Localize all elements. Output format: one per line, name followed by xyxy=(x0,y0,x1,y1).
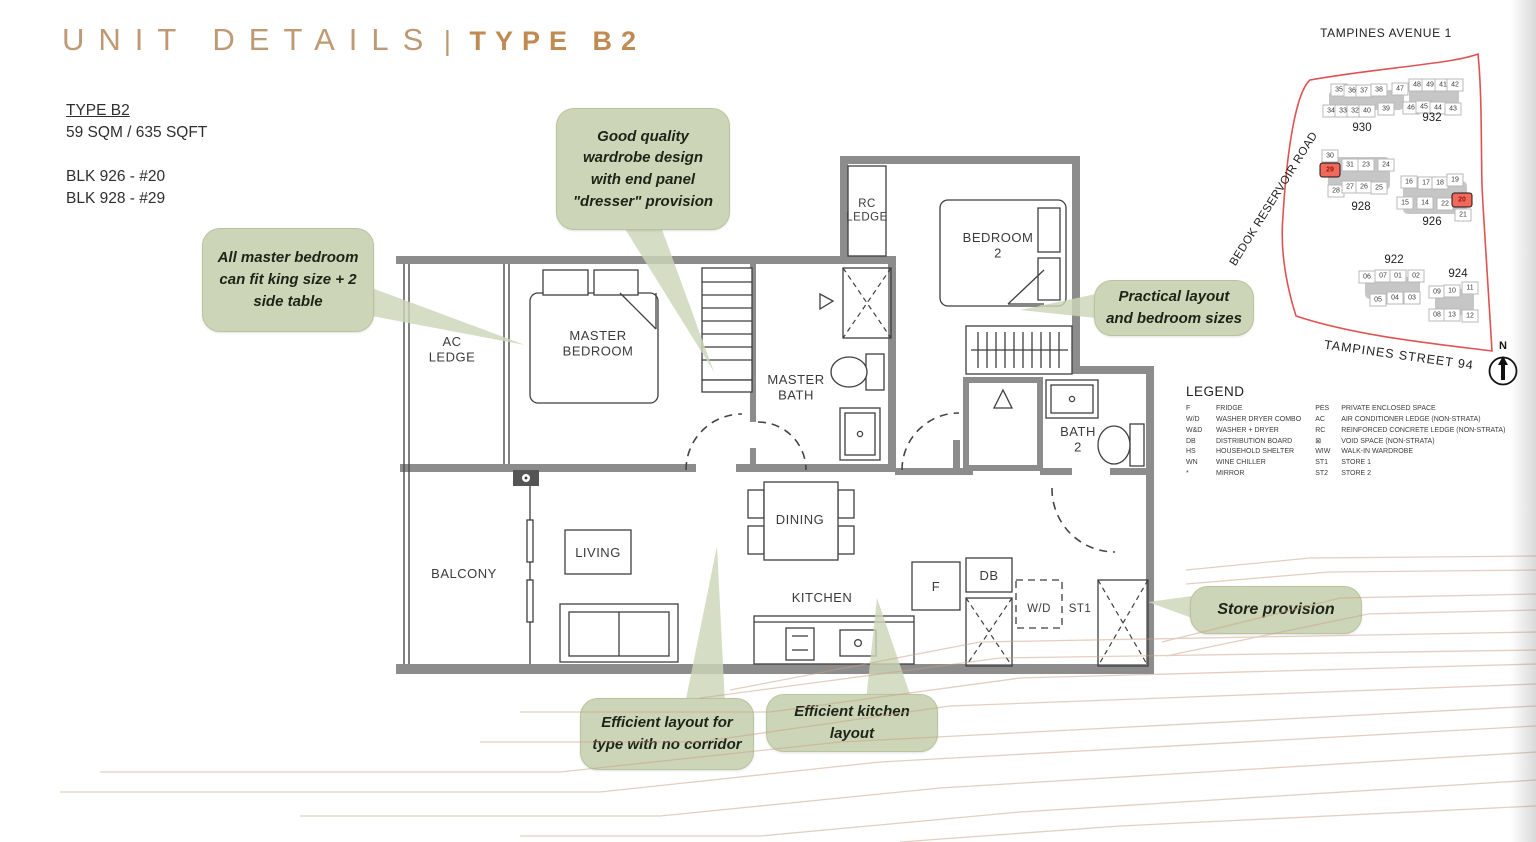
legend-desc: WINE CHILLER xyxy=(1216,458,1266,469)
title-unit-details: UNIT DETAILS xyxy=(62,22,437,57)
legend-row: FFRIDGE xyxy=(1186,404,1301,415)
legend-desc: HOUSEHOLD SHELTER xyxy=(1216,447,1294,458)
legend-row: DBDISTRIBUTION BOARD xyxy=(1186,437,1301,448)
legend-abbr: W/D xyxy=(1186,415,1216,426)
legend-desc: WASHER + DRYER xyxy=(1216,426,1279,437)
legend: LEGEND FFRIDGEW/DWASHER DRYER COMBOW&DWA… xyxy=(1186,384,1534,480)
map-unit: 31 xyxy=(1342,159,1359,172)
legend-desc: PRIVATE ENCLOSED SPACE xyxy=(1341,404,1436,415)
map-unit: 16 xyxy=(1401,176,1418,189)
unit-area: 59 SQM / 635 SQFT xyxy=(66,122,207,144)
callout-efficient-kitchen: Efficient kitchen layout xyxy=(766,694,938,752)
map-unit: 23 xyxy=(1358,159,1375,172)
block-label: 930 xyxy=(1352,122,1371,134)
map-unit: 06 xyxy=(1359,271,1376,284)
callout-practical-layout: Practical layout and bedroom sizes xyxy=(1094,280,1254,336)
map-unit: 15 xyxy=(1397,197,1414,210)
callout-store-provision: Store provision xyxy=(1190,586,1362,634)
callout-master-bedroom: All master bedroom can fit king size + 2… xyxy=(202,228,374,332)
unit-block-line: BLK 926 - #20 xyxy=(66,166,207,188)
legend-abbr: W&D xyxy=(1186,426,1216,437)
unit-type-label: TYPE B2 xyxy=(66,100,207,122)
legend-row: PESPRIVATE ENCLOSED SPACE xyxy=(1315,404,1505,415)
map-unit: 05 xyxy=(1370,294,1387,307)
legend-desc: VOID SPACE (NON-STRATA) xyxy=(1341,437,1434,448)
map-unit: 24 xyxy=(1378,159,1395,172)
map-unit-highlighted: 29 xyxy=(1320,163,1341,178)
street-tampines-avenue-1: TAMPINES AVENUE 1 xyxy=(1236,26,1536,40)
callout-wardrobe: Good quality wardrobe design with end pa… xyxy=(556,108,730,230)
map-unit: 21 xyxy=(1455,209,1472,222)
legend-abbr: ST1 xyxy=(1315,458,1341,469)
legend-abbr: WIW xyxy=(1315,447,1341,458)
site-boundary xyxy=(1236,18,1536,393)
legend-abbr: F xyxy=(1186,404,1216,415)
map-unit: 47 xyxy=(1392,83,1409,96)
map-unit: 30 xyxy=(1322,150,1339,163)
legend-row: ACAIR CONDITIONER LEDGE (NON-STRATA) xyxy=(1315,415,1505,426)
map-unit: 25 xyxy=(1371,182,1388,195)
title-type-b2: TYPE B2 xyxy=(469,26,645,56)
legend-desc: STORE 1 xyxy=(1341,458,1371,469)
legend-column: PESPRIVATE ENCLOSED SPACEACAIR CONDITION… xyxy=(1315,404,1505,480)
block-label: 922 xyxy=(1384,254,1403,266)
legend-desc: DISTRIBUTION BOARD xyxy=(1216,437,1292,448)
legend-desc: FRIDGE xyxy=(1216,404,1242,415)
legend-abbr: AC xyxy=(1315,415,1341,426)
legend-row: W&DWASHER + DRYER xyxy=(1186,426,1301,437)
legend-row: ST2STORE 2 xyxy=(1315,469,1505,480)
legend-desc: REINFORCED CONCRETE LEDGE (NON-STRATA) xyxy=(1341,426,1505,437)
page-title: UNIT DETAILS | TYPE B2 xyxy=(62,22,645,58)
map-unit: 11 xyxy=(1462,282,1479,295)
map-unit: 03 xyxy=(1404,292,1421,305)
legend-abbr: * xyxy=(1186,469,1216,480)
map-unit: 39 xyxy=(1378,103,1395,116)
legend-abbr: PES xyxy=(1315,404,1341,415)
legend-abbr: RC xyxy=(1315,426,1341,437)
map-unit: 13 xyxy=(1444,309,1461,322)
legend-abbr: HS xyxy=(1186,447,1216,458)
unit-details-page: UNIT DETAILS | TYPE B2 TYPE B2 59 SQM / … xyxy=(0,0,1536,842)
legend-row: *MIRROR xyxy=(1186,469,1301,480)
map-unit: 02 xyxy=(1408,270,1425,283)
legend-desc: STORE 2 xyxy=(1341,469,1371,480)
legend-row: WIWWALK-IN WARDROBE xyxy=(1315,447,1505,458)
map-unit: 19 xyxy=(1447,174,1464,187)
map-unit: 12 xyxy=(1462,310,1479,323)
legend-desc: AIR CONDITIONER LEDGE (NON-STRATA) xyxy=(1341,415,1480,426)
legend-desc: MIRROR xyxy=(1216,469,1244,480)
legend-row: HSHOUSEHOLD SHELTER xyxy=(1186,447,1301,458)
legend-row: ⊠VOID SPACE (NON-STRATA) xyxy=(1315,437,1505,448)
site-map: TAMPINES AVENUE 1 BEDOK RESERVOIR ROAD T… xyxy=(1236,18,1536,393)
legend-desc: WASHER DRYER COMBO xyxy=(1216,415,1301,426)
legend-desc: WALK-IN WARDROBE xyxy=(1341,447,1413,458)
map-unit-highlighted: 20 xyxy=(1452,193,1473,208)
legend-row: WNWINE CHILLER xyxy=(1186,458,1301,469)
legend-abbr: ⊠ xyxy=(1315,437,1341,448)
legend-row: ST1STORE 1 xyxy=(1315,458,1505,469)
block-label: 928 xyxy=(1351,201,1370,213)
legend-row: W/DWASHER DRYER COMBO xyxy=(1186,415,1301,426)
map-unit: 14 xyxy=(1417,197,1434,210)
legend-heading: LEGEND xyxy=(1186,384,1534,399)
legend-row: RCREINFORCED CONCRETE LEDGE (NON-STRATA) xyxy=(1315,426,1505,437)
legend-column: FFRIDGEW/DWASHER DRYER COMBOW&DWASHER + … xyxy=(1186,404,1301,480)
callout-no-corridor: Efficient layout for type with no corrid… xyxy=(580,698,754,770)
map-unit: 04 xyxy=(1387,292,1404,305)
map-unit: 43 xyxy=(1445,103,1462,116)
map-unit: 40 xyxy=(1359,105,1376,118)
unit-info: TYPE B2 59 SQM / 635 SQFT BLK 926 - #20 … xyxy=(66,100,207,210)
title-divider: | xyxy=(444,25,451,56)
legend-abbr: WN xyxy=(1186,458,1216,469)
map-unit: 38 xyxy=(1371,84,1388,97)
legend-abbr: DB xyxy=(1186,437,1216,448)
block-label: 924 xyxy=(1448,268,1467,280)
unit-blocks: BLK 926 - #20 BLK 928 - #29 xyxy=(66,166,207,210)
north-arrow: N xyxy=(1486,340,1520,390)
map-unit: 42 xyxy=(1447,79,1464,92)
map-unit: 10 xyxy=(1444,285,1461,298)
unit-block-line: BLK 928 - #29 xyxy=(66,188,207,210)
map-unit: 01 xyxy=(1390,270,1407,283)
block-label: 926 xyxy=(1422,216,1441,228)
legend-abbr: ST2 xyxy=(1315,469,1341,480)
north-label: N xyxy=(1486,340,1520,352)
block-label: 932 xyxy=(1422,112,1441,124)
